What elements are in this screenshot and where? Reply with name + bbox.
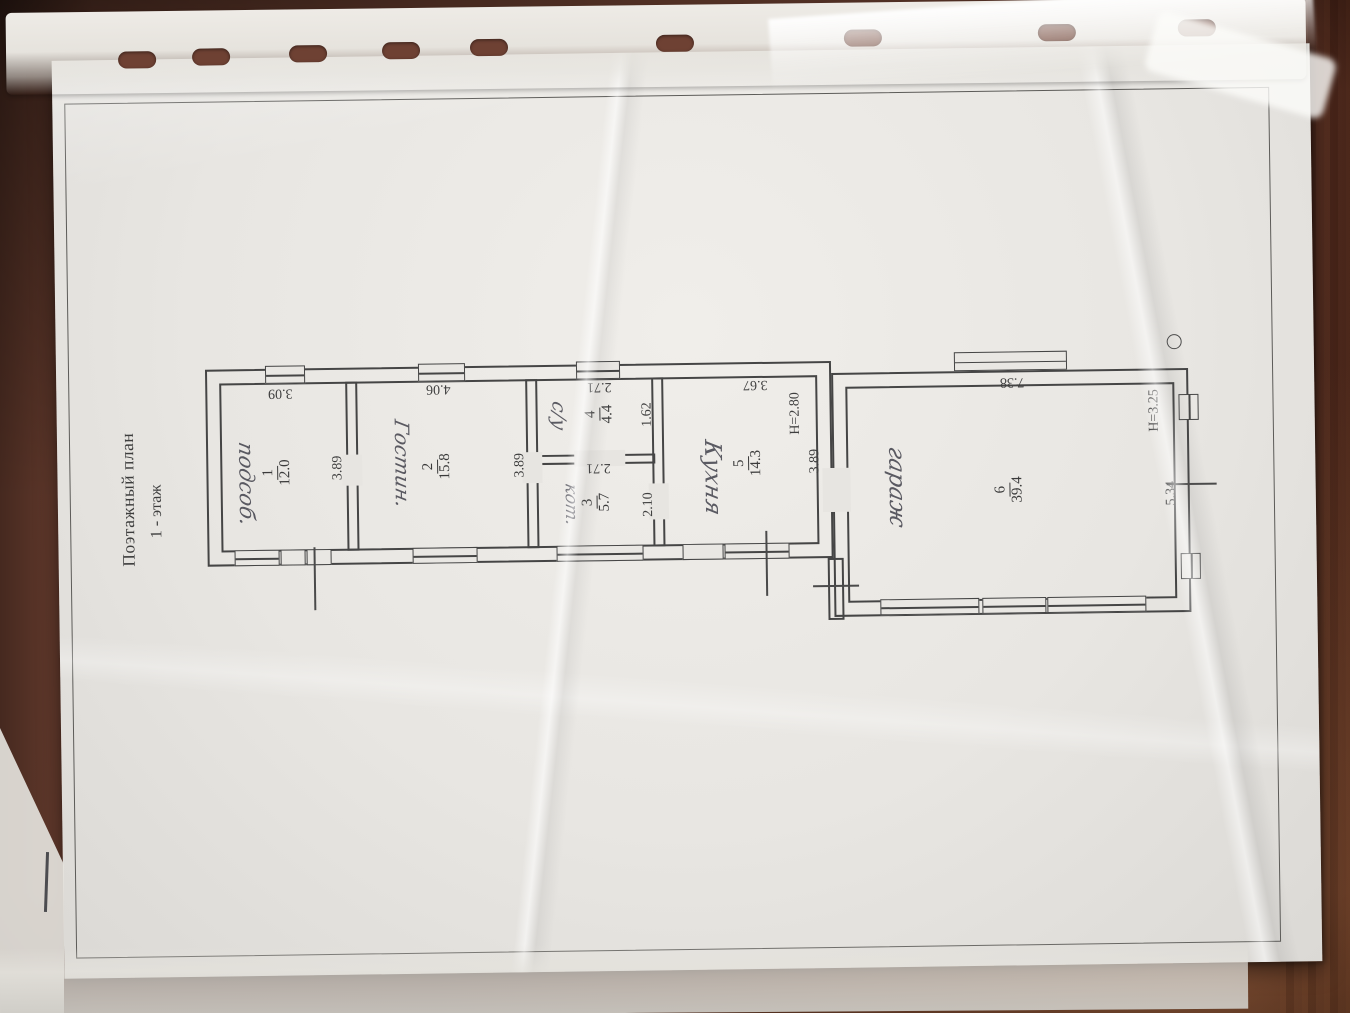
window-symbol [982, 597, 1046, 614]
handwritten-room-name: Кухня [699, 438, 726, 518]
room-area: 12.0 [278, 459, 294, 485]
window-symbol [576, 361, 620, 380]
window-symbol [412, 547, 477, 564]
room-area: 5.7 [597, 493, 613, 512]
room-area: 14.3 [749, 450, 765, 476]
circle-mark [1167, 334, 1182, 349]
dimension-label: 3.67 [743, 376, 768, 392]
window-symbol [1181, 553, 1201, 579]
window-symbol [724, 543, 789, 560]
dimension-label: 1.62 [639, 402, 655, 427]
room-number: 2 [421, 460, 438, 474]
handwritten-room-name: гараж [883, 445, 910, 530]
room-number: 6 [993, 483, 1010, 497]
dimension-label: 2.71 [586, 459, 611, 475]
desk-surface: Поэтажный план 1 - этаж 112.0215.835.744… [0, 0, 1350, 1013]
door-opening [822, 468, 851, 512]
dimension-label: 3.89 [330, 456, 346, 481]
window-symbol [1047, 596, 1146, 613]
window-symbol [556, 545, 643, 562]
window-symbol [880, 598, 979, 615]
dimension-label: 2.10 [641, 492, 657, 517]
handwritten-room-name: с/у [547, 400, 569, 432]
room-label: 639.4 [993, 476, 1026, 503]
handwritten-room-name: подсоб. [234, 440, 259, 528]
room-label: 44.4 [583, 405, 616, 424]
room-label: 35.7 [580, 493, 613, 512]
window-symbol [235, 550, 280, 567]
dimension-label: 4.06 [426, 380, 451, 396]
room-label: 215.8 [421, 453, 454, 480]
dimension-label: H=3.25 [1146, 389, 1163, 432]
window-symbol [954, 351, 1067, 372]
wall-box [281, 549, 306, 565]
dimension-label: 5.34 [1164, 481, 1180, 506]
dimension-label: 7.38 [1000, 373, 1025, 389]
window-symbol [418, 363, 465, 382]
window-symbol [1178, 394, 1198, 420]
punch-hole [118, 51, 156, 68]
punch-hole [289, 45, 327, 62]
dimension-label: 3.09 [268, 384, 293, 400]
punch-hole [382, 42, 420, 59]
room-number: 3 [581, 496, 598, 510]
plastic-sleeve-bottom-edge [0, 940, 1248, 1013]
room-number: 1 [261, 466, 278, 480]
wall-box [682, 543, 723, 560]
dimension-label: 2.71 [587, 378, 612, 394]
punch-hole [656, 35, 694, 52]
wall-segment [828, 558, 845, 620]
window-symbol [265, 365, 305, 384]
floor-plan-drawing: 112.0215.835.744.4514.3639.43.093.894.06… [52, 43, 1323, 978]
room-area: 39.4 [1010, 476, 1026, 502]
room-area: 4.4 [600, 405, 616, 424]
floor-plan-document: Поэтажный план 1 - этаж 112.0215.835.744… [52, 43, 1323, 978]
room-label: 514.3 [732, 450, 765, 477]
dimension-label: 3.89 [512, 453, 528, 478]
punch-hole [192, 48, 230, 65]
punch-hole [470, 39, 508, 56]
dimension-label: H=2.80 [787, 392, 804, 435]
room-number: 5 [732, 456, 749, 470]
wall-box [306, 549, 331, 565]
dimension-label: 3.89 [807, 449, 823, 474]
room-label: 112.0 [261, 459, 294, 486]
handwritten-room-name: Гостин. [390, 418, 415, 511]
room-area: 15.8 [438, 453, 454, 479]
room-number: 4 [583, 407, 600, 421]
handwritten-room-name: кот. [561, 482, 582, 528]
